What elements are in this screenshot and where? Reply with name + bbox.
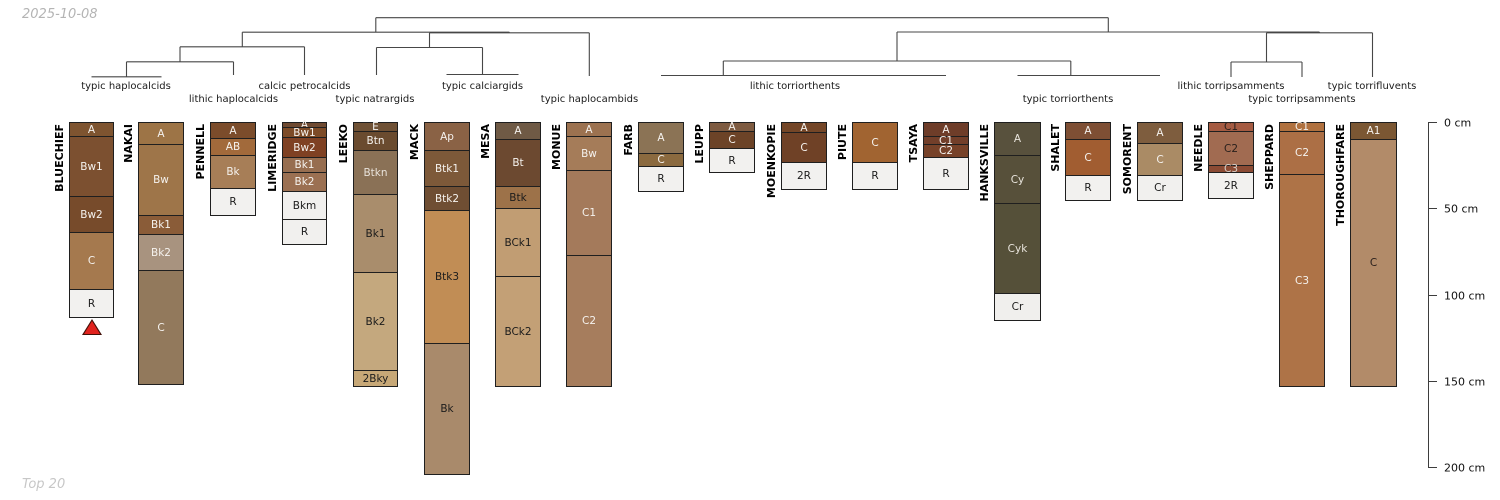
horizon-farb-r: R [638,166,684,192]
group-label-typic-haplocambids: typic haplocambids [541,94,638,105]
horizon-leeko-btn: Btn [353,131,398,151]
horizon-label: A [1084,126,1091,136]
horizon-label: Btk2 [435,194,459,204]
depth-tick-label-200: 200 cm [1444,462,1485,475]
horizon-shalet-c: C [1065,139,1111,176]
horizon-label: C [800,143,807,153]
horizon-label: C [88,256,95,266]
horizon-needle-2r: 2R [1208,172,1254,199]
horizon-label: A [942,125,949,135]
horizon-limeridge-bk1: Bk1 [282,157,327,173]
horizon-mack-btk2: Btk2 [424,186,470,211]
horizon-mesa-bt: Bt [495,139,541,187]
horizon-label: 2R [797,171,811,181]
horizon-shalet-a: A [1065,122,1111,140]
profile-mack: ApBtk1Btk2Btk3Bk [424,122,470,476]
horizon-farb-a: A [638,122,684,154]
profile-name-mack: MACK [408,124,421,160]
horizon-moenkopie-c: C [781,132,827,163]
horizon-pennell-a: A [210,122,256,139]
horizon-leupp-c: C [709,131,755,149]
red-triangle-marker [84,321,100,334]
horizon-label: Bk2 [151,248,171,258]
depth-tick-150 [1428,381,1437,382]
horizon-label: Bk2 [366,317,386,327]
horizon-somorent-cr: Cr [1137,175,1183,201]
horizon-label: A [157,129,164,139]
horizon-bluechief-bw1: Bw1 [69,136,114,197]
plot-footer: Top 20 [22,477,65,492]
profile-name-nakai: NAKAI [122,124,135,163]
horizon-label: R [88,299,95,309]
horizon-label: Btkn [363,168,387,178]
group-label-typic-natrargids: typic natrargids [336,94,415,105]
horizon-label: Bt [512,158,523,168]
horizon-label: Btk3 [435,272,459,282]
dendrogram [0,0,1500,500]
horizon-leeko-bk2: Bk2 [353,272,398,371]
profile-name-hanksville: HANKSVILLE [978,124,991,202]
horizon-piute-c: C [852,122,898,163]
horizon-label: C [657,155,664,165]
profile-name-thoroughfare: THOROUGHFARE [1334,124,1347,226]
horizon-needle-c2: C2 [1208,131,1254,166]
horizon-label: C [728,135,735,145]
horizon-nakai-c: C [138,270,184,385]
profile-name-monue: MONUE [550,124,563,170]
horizon-thoroughfare-a1: A1 [1350,122,1397,140]
profile-bluechief: ABw1Bw2CR [69,122,114,319]
horizon-sheppard-c3: C3 [1279,174,1325,387]
horizon-farb-c: C [638,153,684,167]
depth-tick-label-0: 0 cm [1444,117,1471,130]
horizon-label: A [88,125,95,135]
horizon-hanksville-cy: Cy [994,155,1041,204]
profile-name-pennell: PENNELL [194,124,207,180]
horizon-hanksville-a: A [994,122,1041,156]
horizon-label: BCk1 [504,238,531,248]
horizon-label: Bw [153,175,169,185]
horizon-label: C [157,323,164,333]
profile-name-needle: NEEDLE [1192,124,1205,172]
horizon-hanksville-cr: Cr [994,293,1041,321]
horizon-monue-a: A [566,122,612,137]
profile-farb: ACR [638,122,684,193]
horizon-pennell-bk: Bk [210,155,256,189]
horizon-label: A [585,125,592,135]
group-label-typic-torripsamments: typic torripsamments [1248,94,1355,105]
horizon-mesa-bck2: BCk2 [495,276,541,387]
horizon-label: 2R [1224,181,1238,191]
horizon-mack-btk3: Btk3 [424,210,470,344]
profile-thoroughfare: A1C [1350,122,1397,388]
profile-name-piute: PIUTE [836,124,849,160]
horizon-leeko-2bky: 2Bky [353,370,398,387]
horizon-monue-c2: C2 [566,255,612,387]
horizon-piute-r: R [852,162,898,190]
horizon-limeridge-bw2: Bw2 [282,137,327,158]
horizon-label: BCk2 [504,327,531,337]
profile-moenkopie: AC2R [781,122,827,191]
horizon-label: C [1370,258,1377,268]
horizon-label: A [229,126,236,136]
horizon-label: R [871,171,878,181]
horizon-label: A1 [1367,126,1381,136]
profile-pennell: AABBkR [210,122,256,217]
horizon-mesa-bck1: BCk1 [495,208,541,277]
horizon-label: Bk1 [295,160,315,170]
horizon-pennell-ab: AB [210,138,256,156]
horizon-label: C1 [582,208,596,218]
group-label-lithic-haplocalcids: lithic haplocalcids [189,94,278,105]
horizon-monue-c1: C1 [566,170,612,256]
profile-leupp: ACR [709,122,755,174]
horizon-label: Bw2 [80,210,102,220]
soil-profile-dendrogram-plot: 2025-10-08 typic haplocalcidslithic hapl… [0,0,1500,500]
horizon-label: Btk1 [435,164,459,174]
horizon-pennell-r: R [210,188,256,216]
horizon-label: Bkm [293,201,317,211]
horizon-label: Bk1 [366,229,386,239]
horizon-nakai-a: A [138,122,184,145]
profile-hanksville: ACyCykCr [994,122,1041,322]
horizon-label: C3 [1295,276,1309,286]
horizon-monue-bw: Bw [566,136,612,171]
horizon-somorent-c: C [1137,143,1183,176]
horizon-label: A [800,123,807,133]
profile-mesa: ABtBtkBCk1BCk2 [495,122,541,388]
horizon-label: R [1084,183,1091,193]
depth-tick-label-150: 150 cm [1444,375,1485,388]
group-label-lithic-torriorthents: lithic torriorthents [750,81,840,92]
group-label-typic-haplocalcids: typic haplocalcids [81,81,171,92]
group-label-typic-calciargids: typic calciargids [442,81,523,92]
horizon-label: R [942,169,949,179]
horizon-label: R [301,227,308,237]
horizon-tsaya-r: R [923,157,969,190]
horizon-label: Bw1 [293,128,315,138]
group-label-typic-torriorthents: typic torriorthents [1023,94,1114,105]
depth-tick-0 [1428,122,1437,123]
horizon-label: A [1156,128,1163,138]
horizon-bluechief-c: C [69,232,114,290]
horizon-label: Bw2 [293,143,315,153]
profile-tsaya: AC1C2R [923,122,969,191]
horizon-tsaya-c2: C2 [923,144,969,158]
horizon-limeridge-r: R [282,219,327,245]
profile-name-tsaya: TSAYA [907,124,920,162]
horizon-label: Bk2 [295,177,315,187]
horizon-label: 2Bky [363,374,389,384]
profile-shalet: ACR [1065,122,1111,202]
profile-piute: CR [852,122,898,191]
horizon-label: Cr [1154,183,1166,193]
horizon-bluechief-bw2: Bw2 [69,196,114,233]
depth-tick-label-50: 50 cm [1444,203,1478,216]
group-label-typic-torrifluvents: typic torrifluvents [1328,81,1417,92]
profile-sheppard: C1C2C3 [1279,122,1325,388]
horizon-thoroughfare-c: C [1350,139,1397,387]
horizon-label: Btk [509,193,526,203]
horizon-label: C [1156,155,1163,165]
horizon-somorent-a: A [1137,122,1183,144]
horizon-sheppard-c2: C2 [1279,131,1325,175]
horizon-hanksville-cyk: Cyk [994,203,1041,294]
horizon-nakai-bk2: Bk2 [138,234,184,271]
horizon-limeridge-bk2: Bk2 [282,172,327,192]
horizon-mesa-btk: Btk [495,186,541,209]
horizon-label: Cy [1011,175,1025,185]
horizon-label: Bk [440,404,453,414]
horizon-mack-bk: Bk [424,343,470,475]
profile-name-limeridge: LIMERIDGE [266,124,279,192]
profile-nakai: ABwBk1Bk2C [138,122,184,386]
horizon-moenkopie-2r: 2R [781,162,827,190]
horizon-leeko-bk1: Bk1 [353,194,398,273]
depth-tick-200 [1428,467,1437,468]
profile-somorent: ACCr [1137,122,1183,202]
horizon-shalet-r: R [1065,175,1111,201]
horizon-label: A [657,133,664,143]
horizon-label: Btn [367,136,385,146]
profile-needle: C1C2C32R [1208,122,1254,200]
horizon-label: C [1084,153,1091,163]
horizon-label: R [657,174,664,184]
profile-name-shalet: SHALET [1049,124,1062,172]
horizon-label: Bk [226,167,239,177]
depth-tick-100 [1428,295,1437,296]
horizon-label: Cr [1012,302,1024,312]
horizon-limeridge-bkm: Bkm [282,191,327,220]
horizon-label: Bw [581,149,597,159]
horizon-bluechief-r: R [69,289,114,318]
profile-monue: ABwC1C2 [566,122,612,388]
group-label-calcic-petrocalcids: calcic petrocalcids [258,81,350,92]
horizon-label: C2 [1295,148,1309,158]
horizon-bluechief-a: A [69,122,114,137]
profile-limeridge: ABw1Bw2Bk1Bk2BkmR [282,122,327,246]
horizon-label: R [728,156,735,166]
depth-tick-50 [1428,208,1437,209]
horizon-label: Bw1 [80,162,102,172]
horizon-label: C2 [582,316,596,326]
horizon-label: Bk1 [151,220,171,230]
horizon-mesa-a: A [495,122,541,140]
horizon-leupp-r: R [709,148,755,173]
profile-name-moenkopie: MOENKOPIE [765,124,778,198]
profile-name-leupp: LEUPP [693,124,706,164]
horizon-label: C2 [1224,144,1238,154]
horizon-leeko-btkn: Btkn [353,150,398,195]
profile-name-bluechief: BLUECHIEF [53,124,66,192]
horizon-label: A [1014,134,1021,144]
horizon-nakai-bk1: Bk1 [138,215,184,235]
horizon-label: R [229,197,236,207]
horizon-label: Ap [440,132,454,142]
profile-name-somorent: SOMORENT [1121,124,1134,194]
profile-name-sheppard: SHEPPARD [1263,124,1276,190]
horizon-nakai-bw: Bw [138,144,184,216]
horizon-label: A [514,126,521,136]
horizon-mack-ap: Ap [424,122,470,151]
horizon-label: C [871,138,878,148]
group-label-lithic-torripsamments: lithic torripsamments [1178,81,1285,92]
horizon-label: C2 [939,146,953,156]
profile-name-leeko: LEEKO [337,124,350,163]
horizon-mack-btk1: Btk1 [424,150,470,187]
profile-name-mesa: MESA [479,124,492,159]
profile-leeko: EBtnBtknBk1Bk22Bky [353,122,398,388]
depth-tick-label-100: 100 cm [1444,289,1485,302]
horizon-label: Cyk [1008,244,1028,254]
horizon-label: AB [226,142,240,152]
profile-name-farb: FARB [622,124,635,156]
